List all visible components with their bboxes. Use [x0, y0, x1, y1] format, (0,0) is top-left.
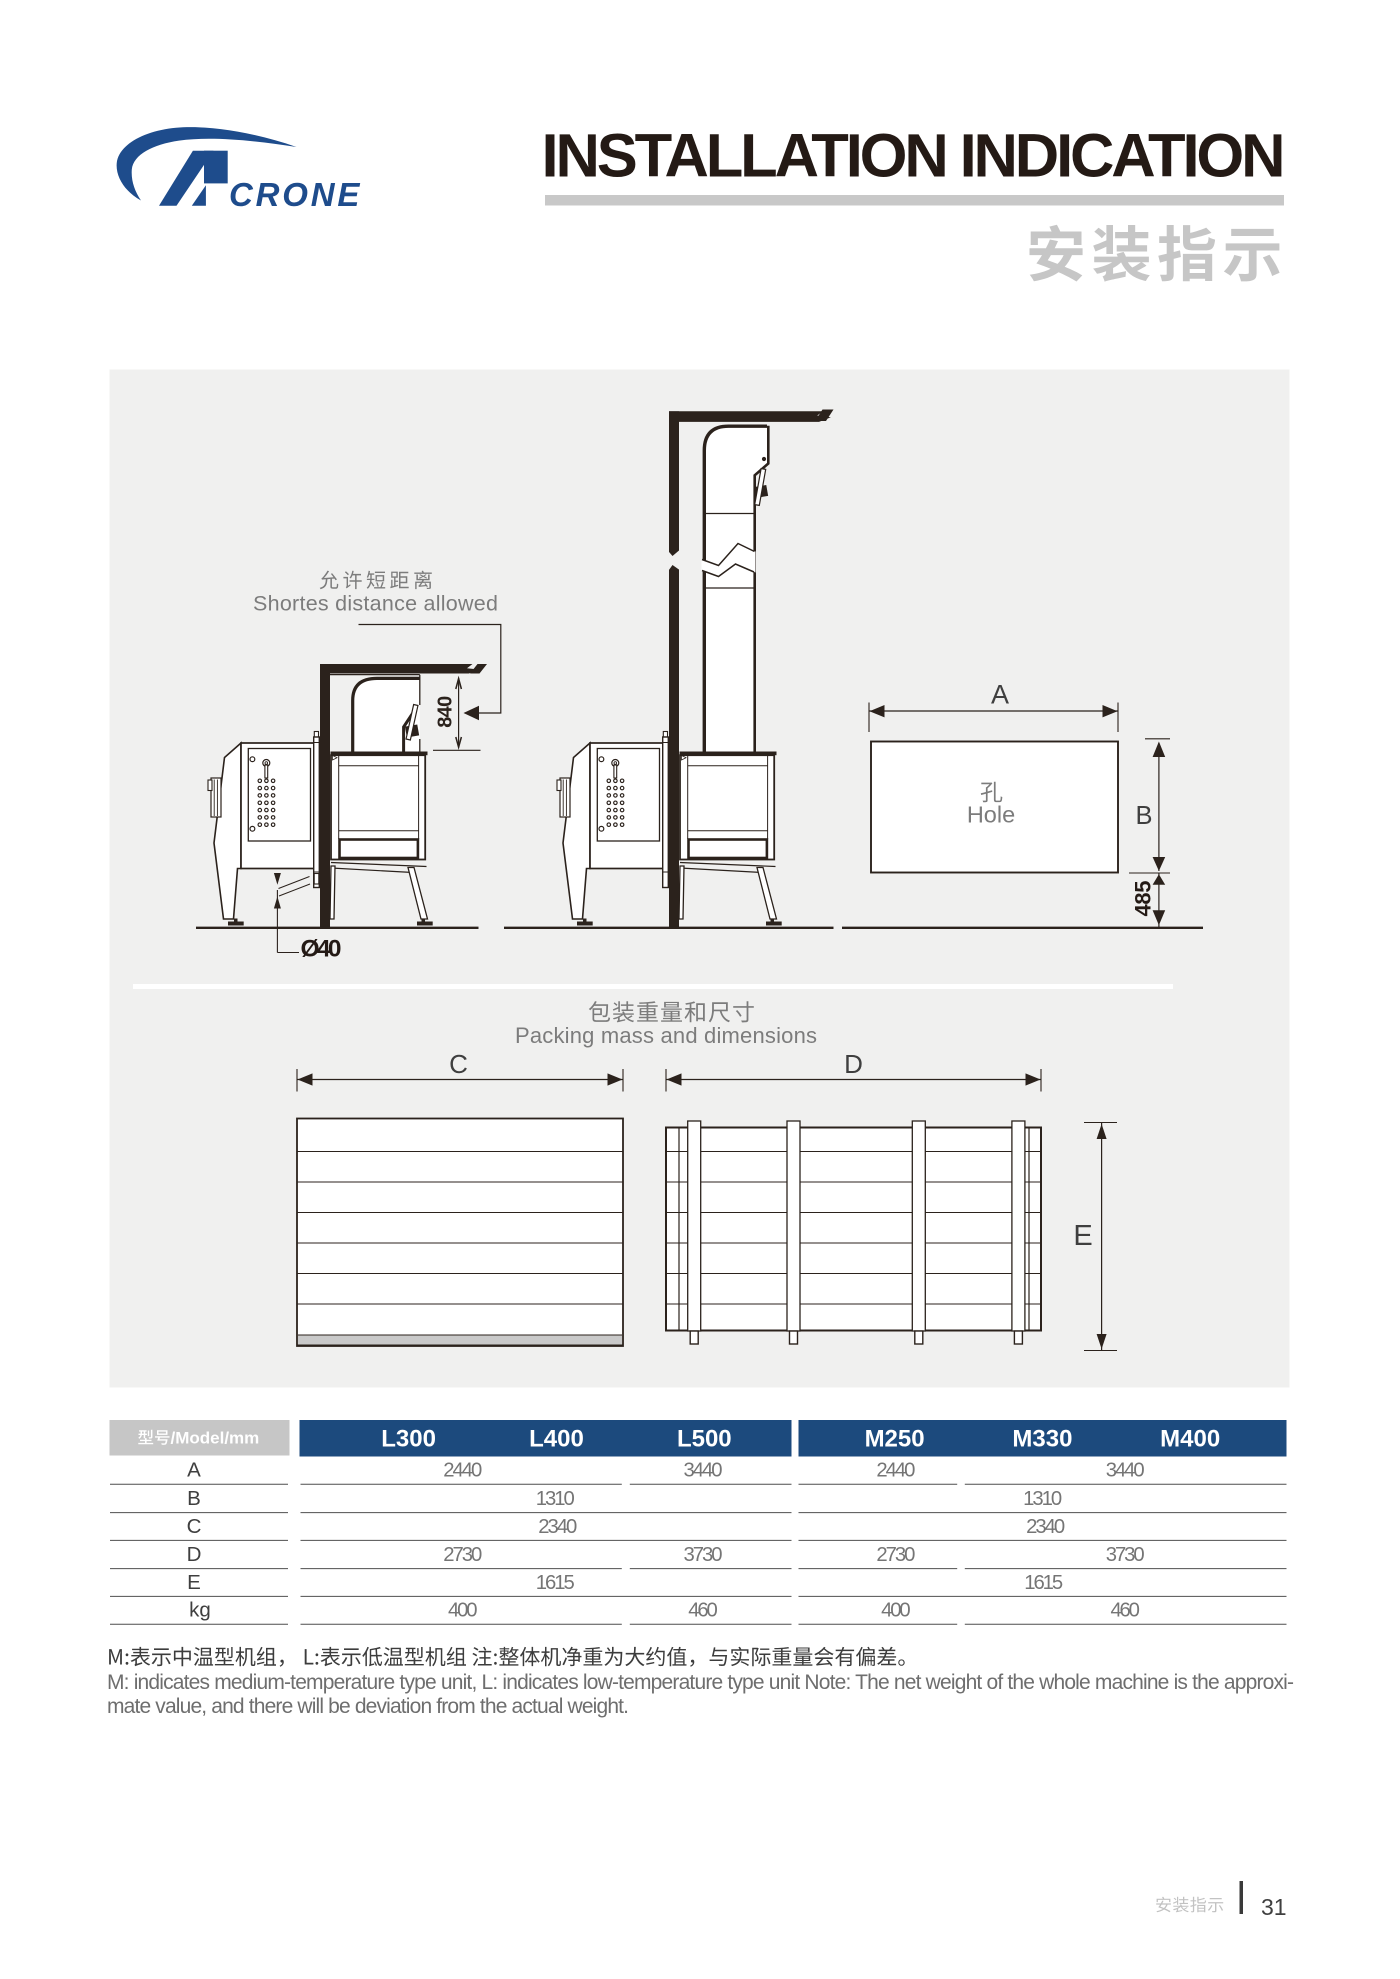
svg-text:3440: 3440 — [1106, 1460, 1145, 1482]
svg-text:M400: M400 — [1160, 1426, 1220, 1453]
svg-text:2440: 2440 — [876, 1460, 915, 1482]
svg-text:L300: L300 — [381, 1426, 436, 1453]
svg-text:L400: L400 — [529, 1426, 584, 1453]
svg-text:400: 400 — [448, 1600, 478, 1622]
svg-text:1615: 1615 — [1024, 1572, 1063, 1594]
svg-text:D: D — [844, 1049, 863, 1079]
svg-text:Packing mass and dimensions: Packing mass and dimensions — [515, 1023, 817, 1048]
svg-text:1310: 1310 — [1023, 1488, 1062, 1510]
svg-text:M: indicates medium-temperatur: M: indicates medium-temperature type uni… — [107, 1671, 1294, 1694]
svg-text:460: 460 — [1110, 1600, 1140, 1622]
svg-text:2340: 2340 — [1026, 1516, 1065, 1538]
svg-text:Hole: Hole — [967, 802, 1015, 828]
svg-text:L500: L500 — [677, 1426, 732, 1453]
svg-text:kg: kg — [189, 1599, 211, 1622]
svg-text:2730: 2730 — [443, 1544, 482, 1566]
svg-text:485: 485 — [1131, 881, 1156, 917]
svg-text:Ø40: Ø40 — [301, 936, 342, 963]
svg-text:Shortes distance allowed: Shortes distance allowed — [253, 592, 498, 616]
svg-text:CRONE: CRONE — [229, 176, 362, 213]
svg-text:840: 840 — [435, 696, 457, 728]
svg-text:1310: 1310 — [536, 1488, 575, 1510]
svg-text:/Model/mm: /Model/mm — [171, 1429, 260, 1448]
svg-text:3730: 3730 — [1106, 1544, 1145, 1566]
svg-text:C: C — [449, 1049, 468, 1079]
svg-text:A: A — [991, 680, 1009, 710]
svg-text:E: E — [187, 1571, 201, 1594]
svg-text:400: 400 — [881, 1600, 911, 1622]
svg-text:31: 31 — [1261, 1894, 1287, 1920]
svg-text:B: B — [187, 1487, 201, 1510]
svg-text:460: 460 — [688, 1600, 718, 1622]
svg-text:3440: 3440 — [684, 1460, 723, 1482]
svg-text:2730: 2730 — [876, 1544, 915, 1566]
svg-text:INSTALLATION INDICATION: INSTALLATION INDICATION — [542, 122, 1286, 191]
svg-text:M250: M250 — [865, 1426, 925, 1453]
svg-text:2340: 2340 — [538, 1516, 577, 1538]
svg-text:mate value, and there will be: mate value, and there will be deviation … — [107, 1695, 629, 1718]
svg-text:B: B — [1135, 802, 1152, 830]
svg-text:E: E — [1073, 1220, 1092, 1252]
svg-text:2440: 2440 — [443, 1460, 482, 1482]
svg-text:1615: 1615 — [536, 1572, 575, 1594]
svg-text:C: C — [187, 1515, 202, 1538]
svg-text:3730: 3730 — [684, 1544, 723, 1566]
svg-text:A: A — [187, 1459, 201, 1482]
svg-text:D: D — [187, 1543, 202, 1566]
svg-text:M330: M330 — [1012, 1426, 1072, 1453]
